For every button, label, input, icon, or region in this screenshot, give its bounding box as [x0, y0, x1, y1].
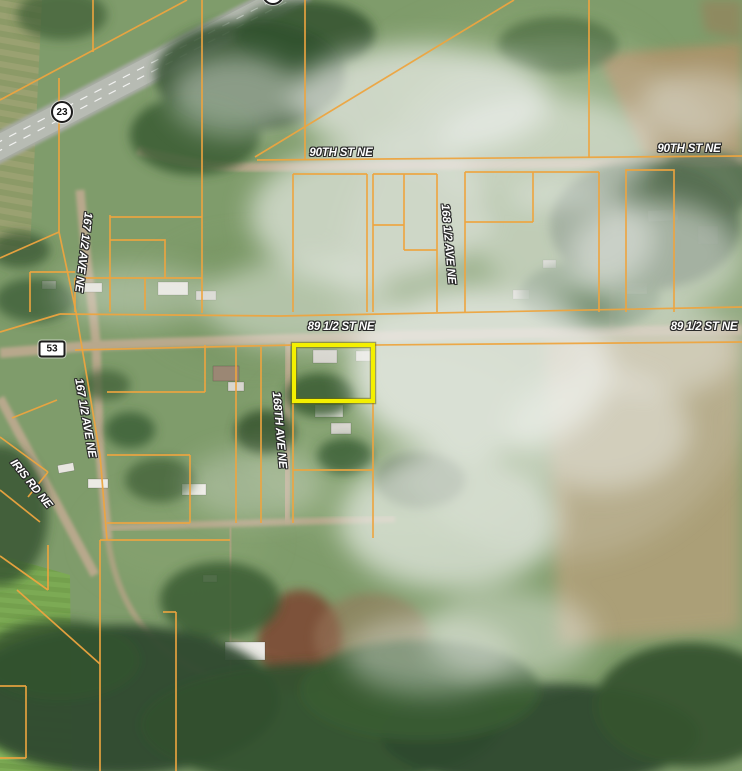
map-canvas[interactable]: 90TH ST NE90TH ST NE89 1/2 ST NE89 1/2 S…	[0, 0, 742, 771]
aerial-basemap	[0, 0, 742, 771]
